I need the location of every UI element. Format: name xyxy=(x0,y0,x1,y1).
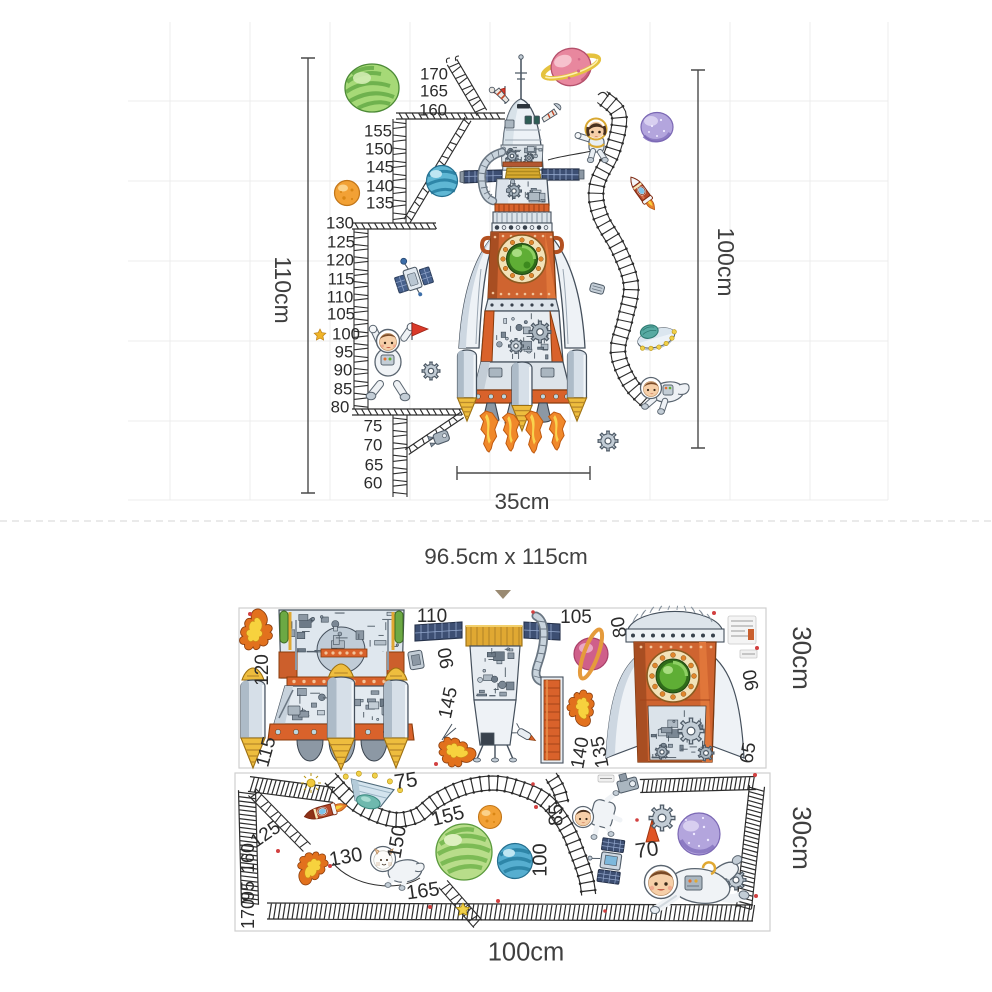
svg-text:65: 65 xyxy=(365,455,384,474)
svg-text:150: 150 xyxy=(365,139,393,158)
svg-text:105: 105 xyxy=(327,304,355,323)
svg-text:90: 90 xyxy=(334,360,353,379)
svg-text:165: 165 xyxy=(405,878,441,904)
svg-text:110cm: 110cm xyxy=(270,256,296,323)
svg-text:95: 95 xyxy=(335,342,354,361)
svg-text:165: 165 xyxy=(420,81,448,100)
svg-text:60: 60 xyxy=(364,473,383,492)
svg-text:100cm: 100cm xyxy=(713,227,739,296)
svg-text:80: 80 xyxy=(331,397,350,416)
svg-text:125: 125 xyxy=(327,232,355,251)
svg-text:145: 145 xyxy=(366,157,394,176)
svg-text:100cm: 100cm xyxy=(488,939,565,967)
svg-text:75: 75 xyxy=(364,416,383,435)
svg-text:130: 130 xyxy=(326,213,354,232)
svg-text:85: 85 xyxy=(545,804,567,826)
svg-text:70: 70 xyxy=(364,435,383,454)
svg-text:90: 90 xyxy=(434,646,458,670)
svg-text:160: 160 xyxy=(238,843,258,873)
svg-text:110: 110 xyxy=(417,606,447,627)
svg-text:155: 155 xyxy=(364,121,392,140)
svg-text:120: 120 xyxy=(252,654,273,686)
svg-text:95: 95 xyxy=(238,881,258,901)
svg-text:170: 170 xyxy=(238,899,258,929)
svg-text:160: 160 xyxy=(419,100,447,119)
svg-text:105: 105 xyxy=(560,607,592,628)
svg-text:100: 100 xyxy=(332,324,360,343)
svg-text:85: 85 xyxy=(334,379,353,398)
svg-text:100: 100 xyxy=(529,843,551,876)
svg-text:65: 65 xyxy=(736,741,760,765)
svg-text:115: 115 xyxy=(328,269,355,288)
svg-text:120: 120 xyxy=(326,250,354,269)
svg-text:70: 70 xyxy=(634,837,660,863)
svg-text:30cm: 30cm xyxy=(787,806,817,870)
svg-text:30cm: 30cm xyxy=(787,626,817,690)
svg-text:135: 135 xyxy=(366,193,394,212)
svg-text:90: 90 xyxy=(739,668,763,692)
svg-text:35cm: 35cm xyxy=(494,489,549,514)
svg-text:96.5cm x 115cm: 96.5cm x 115cm xyxy=(424,544,587,569)
svg-text:75: 75 xyxy=(393,768,419,794)
